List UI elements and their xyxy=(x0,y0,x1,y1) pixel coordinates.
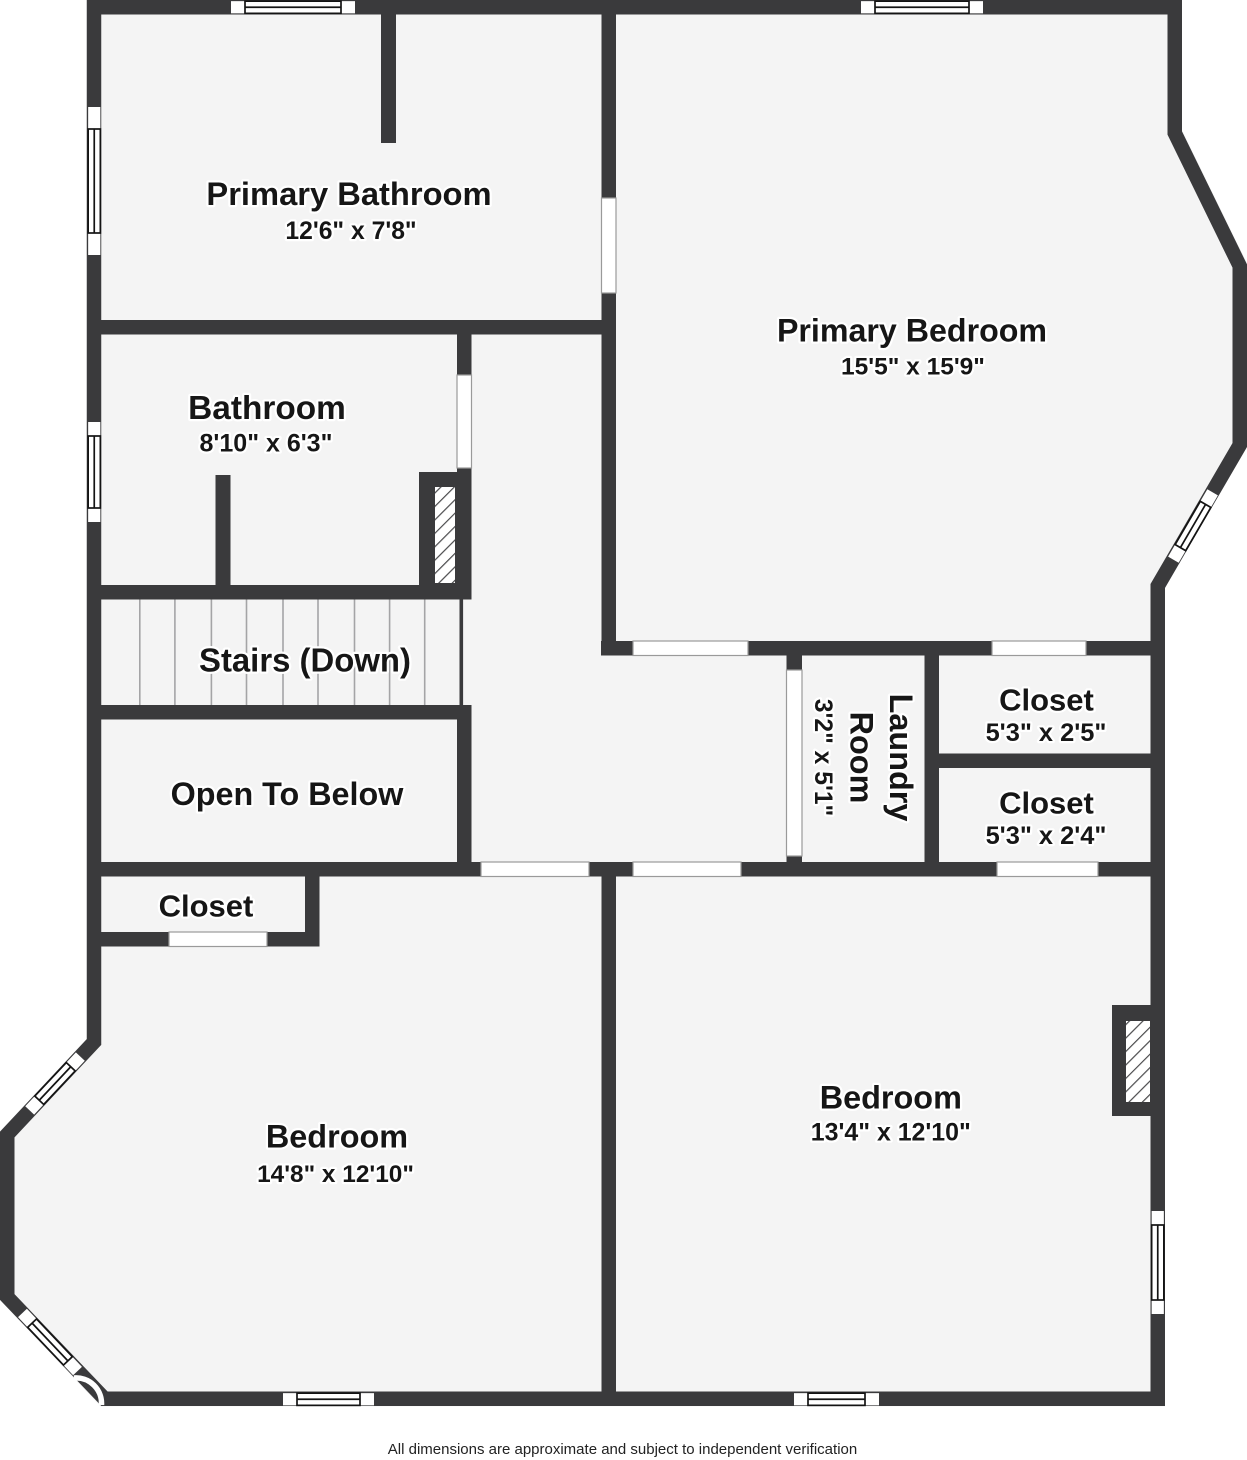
svg-text:Closet: Closet xyxy=(159,889,254,924)
svg-text:5'3" x 2'4": 5'3" x 2'4" xyxy=(986,822,1107,850)
svg-text:Stairs (Down): Stairs (Down) xyxy=(199,642,411,679)
svg-text:Bathroom: Bathroom xyxy=(188,390,346,427)
svg-text:Closet: Closet xyxy=(999,786,1094,821)
svg-text:Primary Bathroom: Primary Bathroom xyxy=(206,175,491,212)
svg-text:Bedroom: Bedroom xyxy=(820,1080,962,1116)
svg-text:15'5" x 15'9": 15'5" x 15'9" xyxy=(841,354,985,381)
svg-text:Laundry: Laundry xyxy=(883,694,919,822)
svg-text:Bedroom: Bedroom xyxy=(266,1119,408,1155)
svg-text:8'10" x 6'3": 8'10" x 6'3" xyxy=(200,430,333,458)
svg-text:Room: Room xyxy=(843,712,879,804)
svg-text:12'6" x 7'8": 12'6" x 7'8" xyxy=(285,218,416,245)
svg-text:Closet: Closet xyxy=(999,683,1094,718)
svg-text:Primary Bedroom: Primary Bedroom xyxy=(777,313,1047,349)
svg-text:Open To Below: Open To Below xyxy=(171,776,405,812)
svg-text:All dimensions are approximate: All dimensions are approximate and subje… xyxy=(388,1441,857,1458)
svg-text:14'8" x 12'10": 14'8" x 12'10" xyxy=(257,1161,414,1188)
svg-text:13'4" x 12'10": 13'4" x 12'10" xyxy=(811,1119,971,1147)
svg-text:5'3" x 2'5": 5'3" x 2'5" xyxy=(986,719,1107,747)
svg-text:3'2" x 5'1": 3'2" x 5'1" xyxy=(809,699,836,817)
